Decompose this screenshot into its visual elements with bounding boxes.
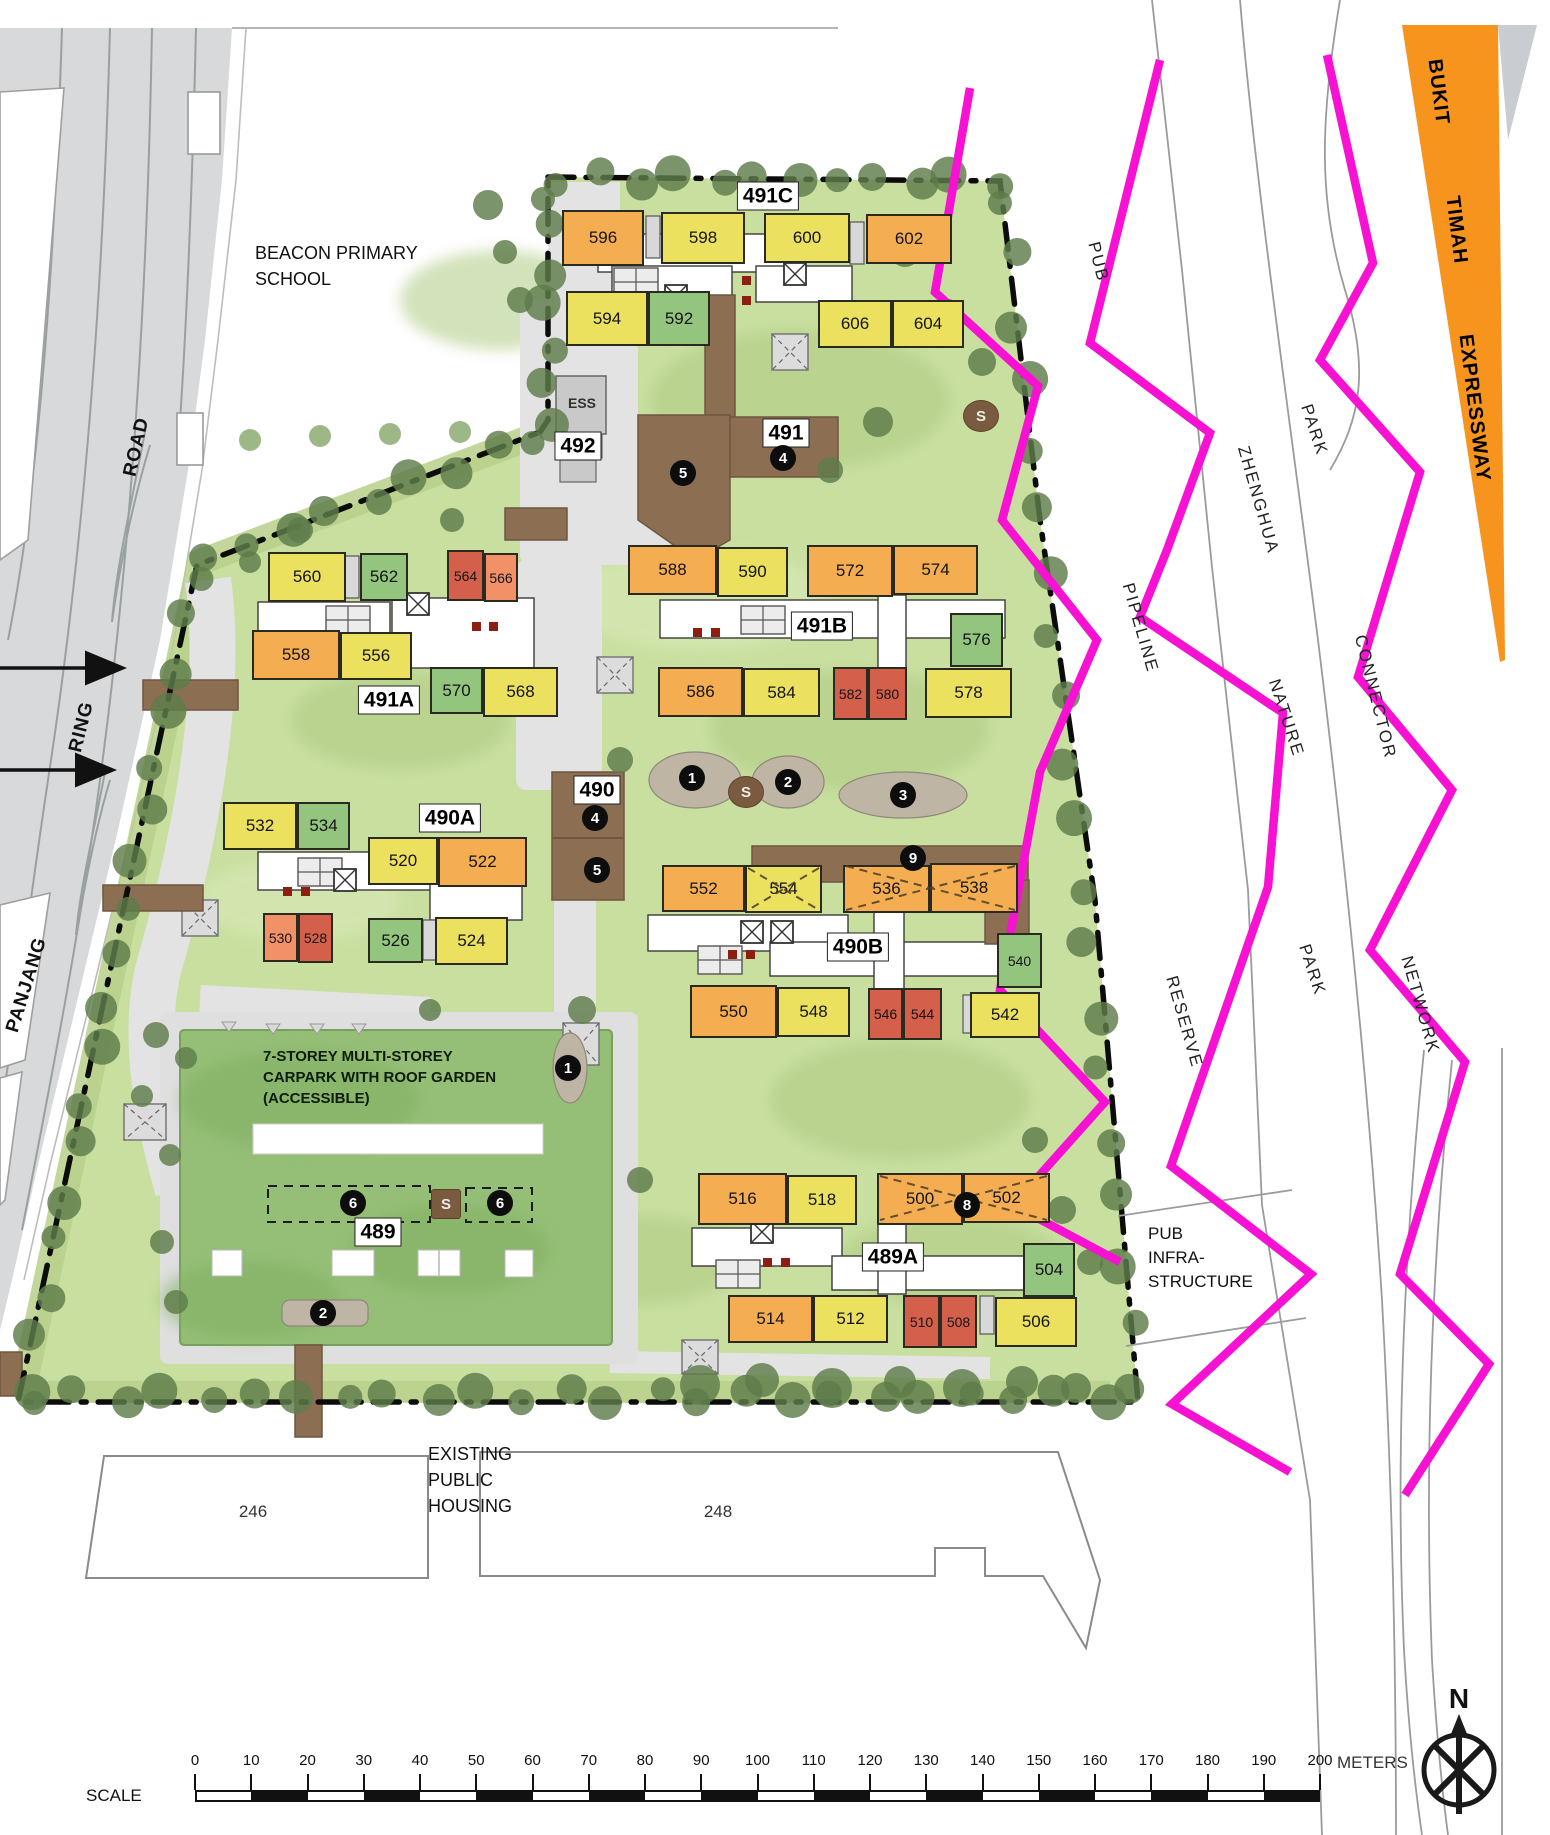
legend-marker-3: 3: [890, 782, 916, 808]
legend-marker-2: 2: [775, 769, 801, 795]
scale-tick-label: 150: [1026, 1752, 1051, 1769]
block-label-492: 492: [554, 432, 601, 461]
scale-tick: [419, 1774, 421, 1790]
road-label-nature: NATURE: [1264, 677, 1308, 760]
block-label-491C: 491C: [737, 182, 799, 211]
scale-tick-label: 30: [355, 1752, 372, 1769]
road-label-network: NETWORK: [1396, 954, 1443, 1056]
scale-tick-label: 90: [693, 1752, 710, 1769]
substation-marker: S: [728, 776, 764, 808]
pub-infrastructure-label: PUB INFRA- STRUCTURE: [1148, 1222, 1253, 1294]
road-label-park: PARK: [1296, 402, 1331, 459]
scale-tick: [532, 1774, 534, 1790]
scale-tick-label: 100: [745, 1752, 770, 1769]
scale-label: SCALE: [86, 1786, 142, 1806]
legend-marker-1: 1: [555, 1055, 581, 1081]
scale-tick-label: 10: [243, 1752, 260, 1769]
scale-tick: [1263, 1774, 1265, 1790]
scale-segment: [251, 1790, 307, 1802]
legend-marker-5: 5: [670, 460, 696, 486]
scale-tick: [475, 1774, 477, 1790]
block-label-490A: 490A: [419, 804, 481, 833]
scale-tick-label: 40: [412, 1752, 429, 1769]
housing-246: 246: [239, 1502, 267, 1522]
scale-segment: [926, 1790, 982, 1802]
road-label-park: PARK: [1294, 942, 1329, 999]
scale-segment: [814, 1790, 870, 1802]
road-label-pipeline: PIPELINE: [1118, 581, 1163, 675]
scale-tick: [194, 1774, 196, 1790]
north-label: N: [1449, 1683, 1469, 1715]
legend-marker-6: 6: [340, 1190, 366, 1216]
scale-tick: [813, 1774, 815, 1790]
scale-tick: [925, 1774, 927, 1790]
scale-tick-label: 120: [857, 1752, 882, 1769]
road-label-reserve: RESERVE: [1161, 974, 1206, 1071]
scale-tick-label: 140: [970, 1752, 995, 1769]
scale-tick: [307, 1774, 309, 1790]
scale-tick: [1094, 1774, 1096, 1790]
block-label-490: 490: [573, 776, 620, 805]
housing-248: 248: [704, 1502, 732, 1522]
legend-marker-4: 4: [582, 805, 608, 831]
legend-marker-6: 6: [487, 1190, 513, 1216]
road-label-ring: RING: [65, 699, 99, 754]
legend-marker-9: 9: [900, 845, 926, 871]
legend-marker-1: 1: [679, 765, 705, 791]
road-label-timah: TIMAH: [1440, 195, 1471, 266]
scale-segment: [476, 1790, 532, 1802]
substation-marker: S: [963, 400, 999, 432]
scale-tick-label: 0: [191, 1752, 199, 1769]
scale-tick-label: 50: [468, 1752, 485, 1769]
scale-tick-label: 180: [1195, 1752, 1220, 1769]
road-label-road: ROAD: [120, 415, 155, 478]
scale-segment: [589, 1790, 645, 1802]
scale-tick-label: 70: [580, 1752, 597, 1769]
site-plan-canvas: 5965986006025945926066045605625645665585…: [0, 0, 1550, 1835]
scale-tick: [757, 1774, 759, 1790]
scale-tick-label: 110: [802, 1752, 826, 1769]
road-label-connector: CONNECTOR: [1350, 633, 1400, 761]
legend-marker-4: 4: [770, 445, 796, 471]
block-label-489: 489: [354, 1218, 401, 1247]
scale-segment: [364, 1790, 420, 1802]
ess-label: ESS: [568, 395, 596, 411]
road-label-panjang: PANJANG: [2, 935, 52, 1036]
scale-tick-label: 80: [637, 1752, 654, 1769]
scale-segment: [1264, 1790, 1320, 1802]
block-label-491: 491: [762, 419, 809, 448]
scale-segment: [1151, 1790, 1207, 1802]
scale-tick: [700, 1774, 702, 1790]
scale-tick-label: 20: [299, 1752, 316, 1769]
legend-marker-5: 5: [584, 857, 610, 883]
scale-tick: [1207, 1774, 1209, 1790]
scale-tick: [588, 1774, 590, 1790]
road-label-zhenghua: ZHENGHUA: [1233, 444, 1283, 557]
substation-marker: S: [431, 1189, 461, 1219]
scale-tick: [363, 1774, 365, 1790]
labels-layer: 491C492491491A491B490490A490B489489A5445…: [0, 0, 1550, 1835]
existing-housing-label: EXISTING PUBLIC HOUSING: [428, 1441, 512, 1519]
scale-unit-label: METERS: [1337, 1753, 1408, 1773]
road-label-bukit: BUKIT: [1423, 58, 1454, 126]
legend-marker-2: 2: [310, 1300, 336, 1326]
scale-tick-label: 160: [1082, 1752, 1107, 1769]
scale-tick-label: 190: [1251, 1752, 1276, 1769]
school-label: BEACON PRIMARY SCHOOL: [255, 240, 418, 292]
scale-tick: [250, 1774, 252, 1790]
block-label-490B: 490B: [827, 933, 889, 962]
scale-tick-label: 130: [914, 1752, 939, 1769]
scale-segment: [1039, 1790, 1095, 1802]
scale-tick: [1150, 1774, 1152, 1790]
scale-tick: [1038, 1774, 1040, 1790]
scale-tick: [1319, 1774, 1321, 1790]
block-label-491A: 491A: [358, 686, 420, 715]
legend-marker-8: 8: [954, 1192, 980, 1218]
scale-tick-label: 60: [524, 1752, 541, 1769]
block-label-491B: 491B: [791, 612, 853, 641]
road-label-expressway: EXPRESSWAY: [1454, 333, 1495, 483]
scale-segment: [701, 1790, 757, 1802]
scale-tick: [869, 1774, 871, 1790]
scale-tick-label: 170: [1139, 1752, 1164, 1769]
carpark-label: 7-STOREY MULTI-STOREY CARPARK WITH ROOF …: [263, 1046, 496, 1109]
road-label-pub: PUB: [1083, 240, 1112, 285]
scale-tick: [644, 1774, 646, 1790]
scale-tick: [982, 1774, 984, 1790]
block-label-489A: 489A: [862, 1243, 924, 1272]
scale-tick-label: 200: [1307, 1752, 1332, 1769]
